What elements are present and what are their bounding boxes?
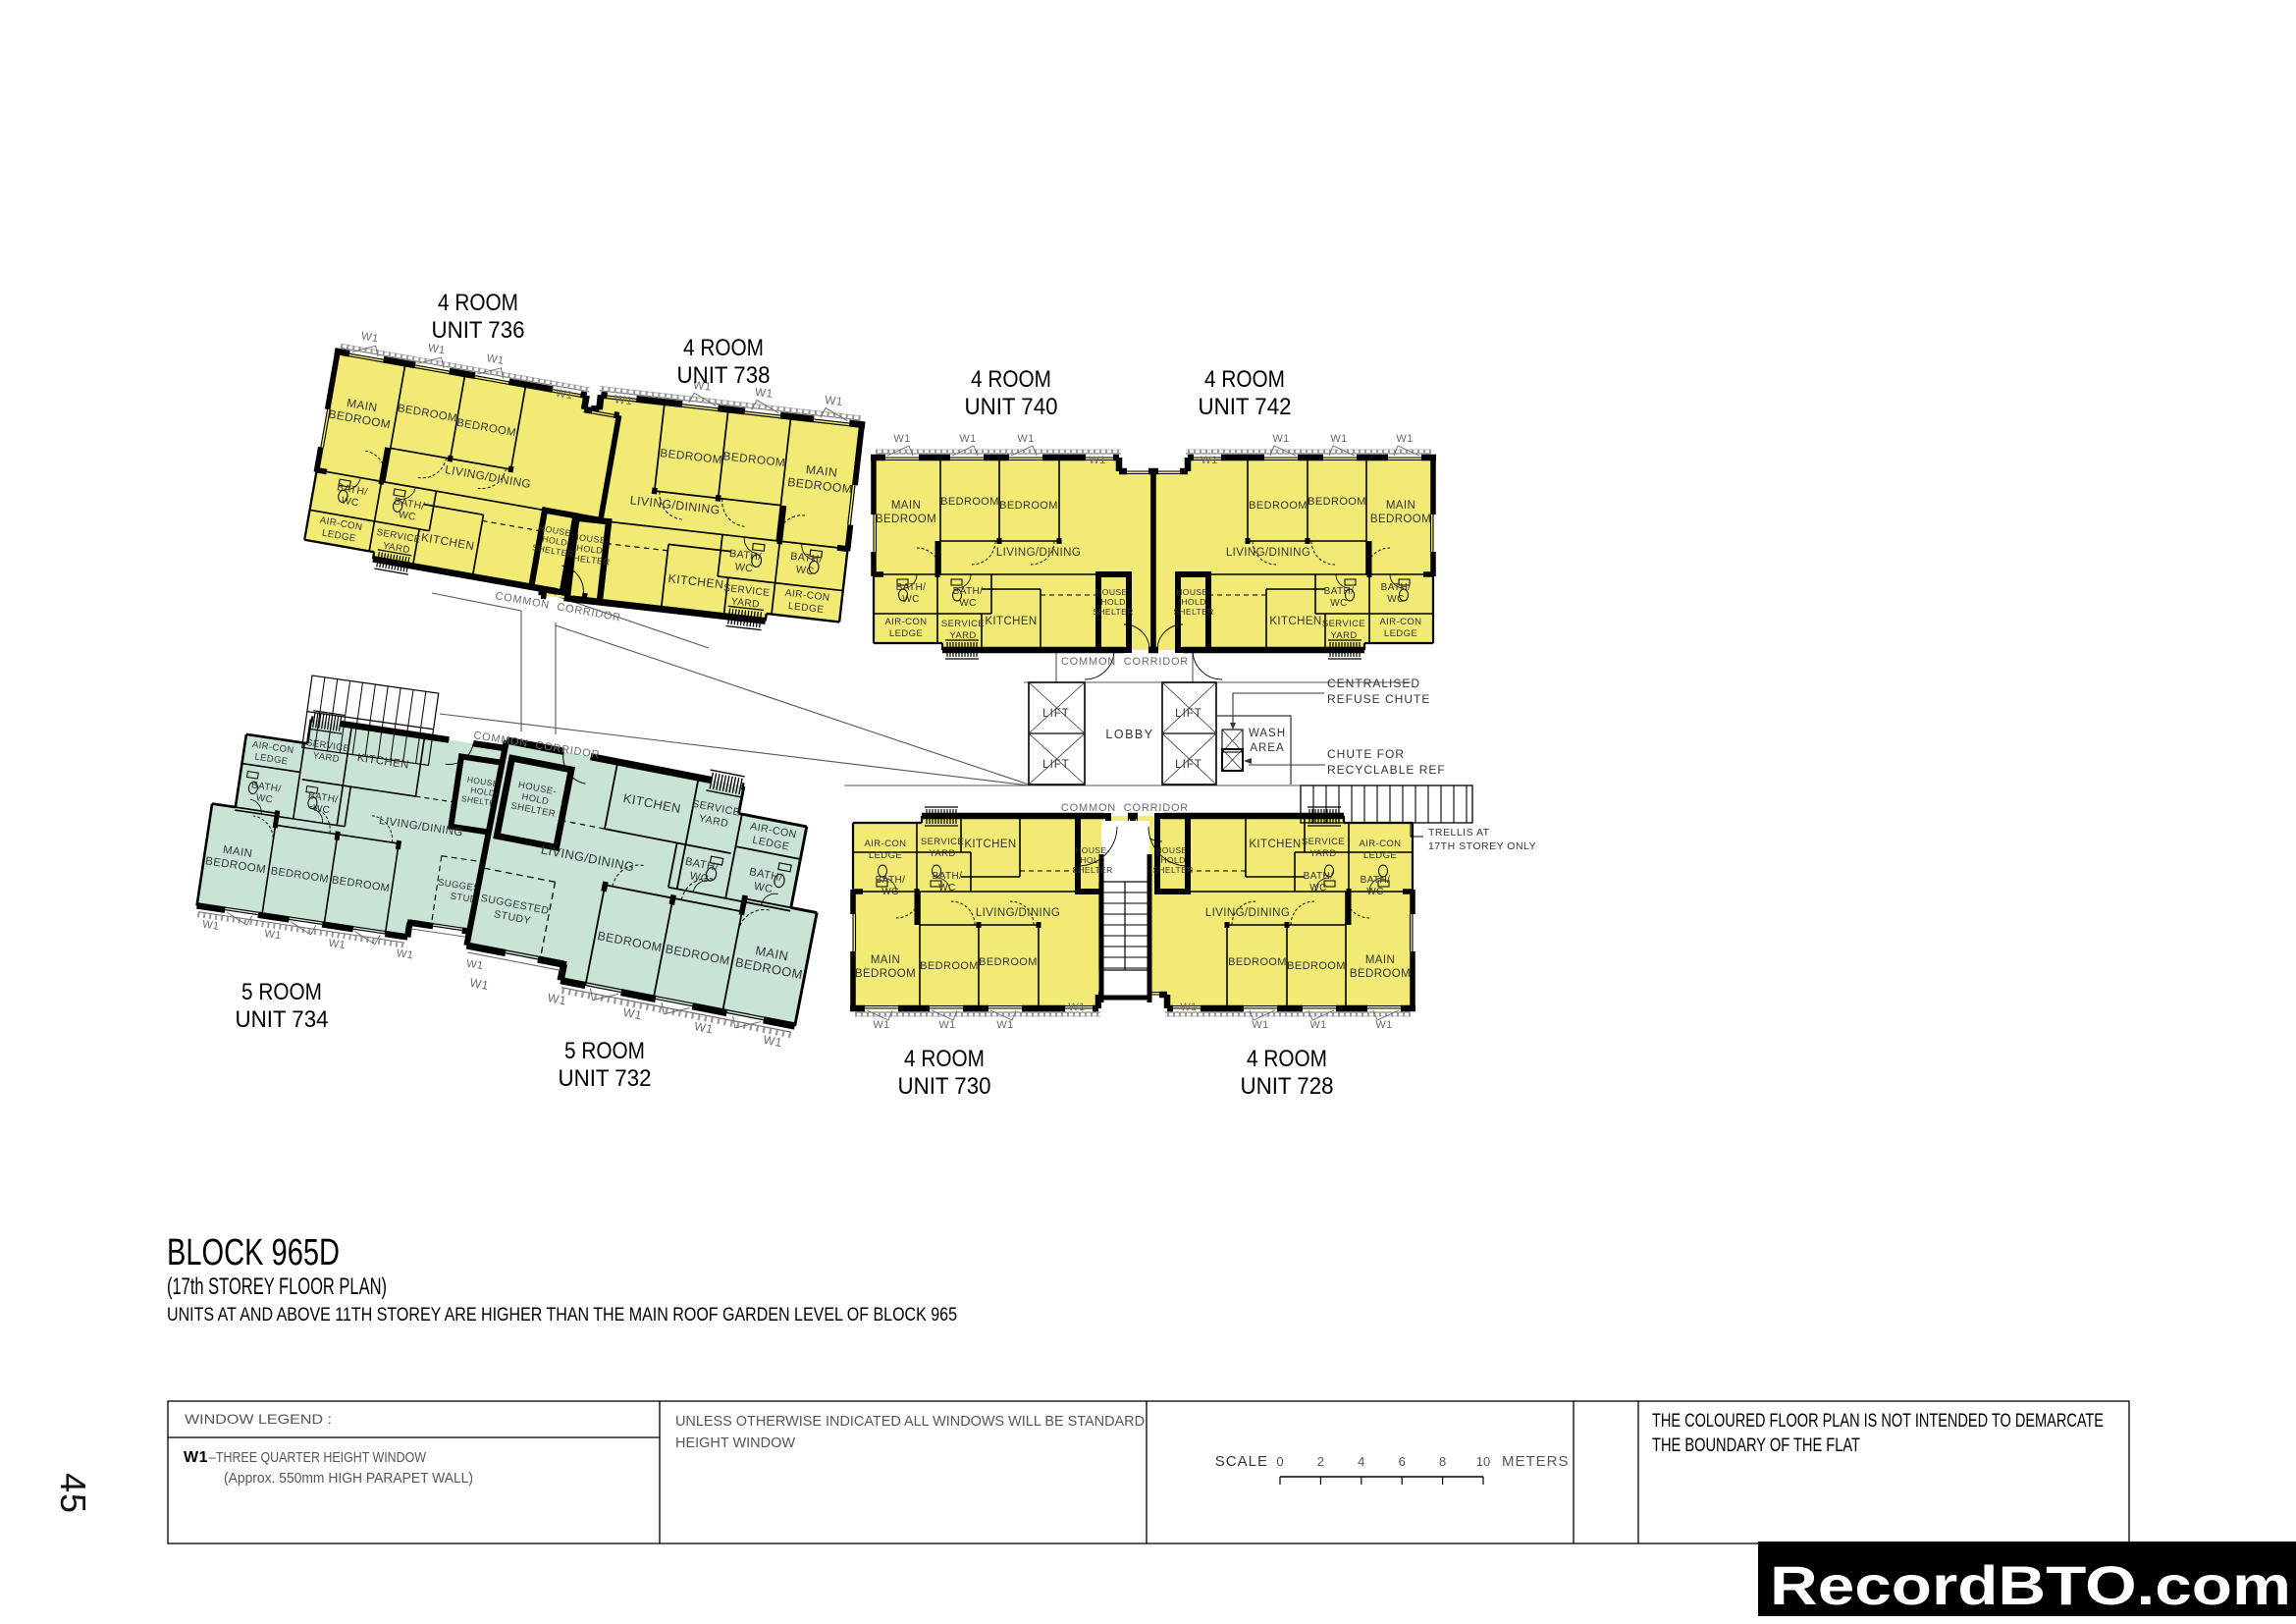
svg-text:4 ROOM: 4 ROOM	[904, 1046, 985, 1072]
svg-text:5 ROOM: 5 ROOM	[564, 1038, 645, 1064]
svg-text:HOUSE-: HOUSE-	[1155, 845, 1190, 855]
svg-text:REFUSE CHUTE: REFUSE CHUTE	[1327, 692, 1430, 706]
svg-text:YARD: YARD	[1309, 848, 1336, 859]
svg-text:4 ROOM: 4 ROOM	[1247, 1046, 1327, 1072]
svg-text:BEDROOM: BEDROOM	[1370, 514, 1431, 525]
svg-text:CENTRALISED: CENTRALISED	[1327, 677, 1420, 690]
svg-text:W1: W1	[264, 928, 283, 942]
svg-text:COMMON CORRIDOR: COMMON CORRIDOR	[1061, 656, 1189, 668]
svg-text:BATH/: BATH/	[876, 875, 906, 886]
svg-text:LIFT: LIFT	[1042, 708, 1070, 720]
svg-text:BEDROOM: BEDROOM	[1249, 500, 1308, 512]
svg-text:SERVICE: SERVICE	[941, 619, 985, 629]
svg-text:AREA: AREA	[1250, 742, 1284, 754]
svg-text:SHELTER: SHELTER	[1173, 607, 1213, 617]
svg-text:WC: WC	[881, 887, 898, 897]
svg-text:BEDROOM: BEDROOM	[855, 968, 916, 980]
svg-text:17TH STOREY ONLY: 17TH STOREY ONLY	[1428, 840, 1536, 852]
svg-text:BEDROOM: BEDROOM	[979, 956, 1038, 968]
svg-text:KITCHEN: KITCHEN	[1269, 616, 1321, 627]
svg-text:2: 2	[1317, 1454, 1324, 1469]
svg-text:(17th STOREY FLOOR PLAN): (17th STOREY FLOOR PLAN)	[167, 1273, 387, 1300]
svg-text:UNIT 728: UNIT 728	[1241, 1073, 1334, 1100]
svg-text:W1: W1	[184, 1449, 208, 1466]
svg-text:BLOCK 965D: BLOCK 965D	[167, 1232, 340, 1273]
svg-text:BATH/: BATH/	[933, 871, 963, 882]
svg-text:BEDROOM: BEDROOM	[999, 500, 1058, 512]
svg-text:BATH/: BATH/	[1304, 871, 1334, 882]
svg-text:BEDROOM: BEDROOM	[940, 496, 999, 508]
svg-text:W1: W1	[996, 1019, 1013, 1031]
svg-text:UNIT 738: UNIT 738	[677, 362, 771, 389]
svg-text:W1: W1	[1089, 455, 1105, 466]
svg-text:LEDGE: LEDGE	[889, 628, 923, 639]
svg-text:SERVICE: SERVICE	[921, 837, 964, 847]
svg-text:4: 4	[1358, 1454, 1364, 1469]
svg-text:BEDROOM: BEDROOM	[1308, 496, 1366, 508]
svg-text:KITCHEN: KITCHEN	[964, 839, 1016, 850]
svg-text:4 ROOM: 4 ROOM	[971, 366, 1051, 393]
svg-text:W1: W1	[328, 938, 347, 951]
svg-text:LIFT: LIFT	[1042, 759, 1070, 771]
svg-text:0: 0	[1276, 1454, 1283, 1469]
svg-text:W1: W1	[1330, 433, 1347, 445]
svg-text:SERVICE: SERVICE	[1302, 837, 1345, 847]
svg-text:WC: WC	[1366, 887, 1383, 897]
svg-text:W1: W1	[201, 918, 220, 932]
svg-text:W1: W1	[1272, 433, 1289, 445]
svg-text:WINDOW LEGEND :: WINDOW LEGEND :	[185, 1411, 332, 1427]
svg-text:HOUSE-: HOUSE-	[1095, 587, 1130, 597]
svg-text:W1: W1	[1180, 1001, 1197, 1013]
svg-text:W1: W1	[1375, 1019, 1392, 1031]
svg-text:BATH/: BATH/	[953, 586, 984, 597]
svg-text:UNIT 742: UNIT 742	[1199, 394, 1292, 420]
svg-text:(Approx. 550mm HIGH PARAPET WA: (Approx. 550mm HIGH PARAPET WALL)	[224, 1471, 473, 1487]
svg-text:WC: WC	[1330, 598, 1347, 609]
svg-text:THE COLOURED FLOOR PLAN IS NOT: THE COLOURED FLOOR PLAN IS NOT INTENDED …	[1652, 1411, 2104, 1432]
svg-text:MAIN: MAIN	[1365, 954, 1395, 966]
svg-text:UNIT 730: UNIT 730	[898, 1073, 991, 1100]
svg-text:HOUSE-: HOUSE-	[1176, 587, 1210, 597]
svg-text:YARD: YARD	[949, 630, 976, 641]
svg-text:4 ROOM: 4 ROOM	[438, 290, 518, 316]
svg-text:WC: WC	[938, 883, 955, 893]
svg-text:SCALE: SCALE	[1215, 1453, 1268, 1470]
svg-text:LIVING/DINING: LIVING/DINING	[1205, 907, 1290, 919]
svg-text:W1: W1	[465, 958, 484, 972]
svg-text:SHELTER: SHELTER	[1152, 865, 1193, 875]
svg-text:10: 10	[1476, 1454, 1490, 1469]
svg-text:W1: W1	[873, 1019, 889, 1031]
svg-text:MAIN: MAIN	[1386, 500, 1415, 512]
svg-text:SHELTER: SHELTER	[1093, 607, 1133, 617]
svg-text:WC: WC	[959, 598, 976, 609]
svg-text:LEDGE: LEDGE	[1363, 850, 1397, 861]
svg-text:LIFT: LIFT	[1175, 759, 1202, 771]
svg-text:W1: W1	[1309, 1019, 1326, 1031]
svg-text:UNLESS OTHERWISE INDICATED ALL: UNLESS OTHERWISE INDICATED ALL WINDOWS W…	[675, 1414, 1145, 1430]
svg-text:W1: W1	[938, 1019, 955, 1031]
svg-text:YARD: YARD	[1330, 630, 1357, 641]
svg-text:UNIT 734: UNIT 734	[236, 1006, 329, 1033]
svg-text:5 ROOM: 5 ROOM	[241, 979, 322, 1005]
svg-text:UNIT 736: UNIT 736	[432, 317, 525, 344]
svg-text:CHUTE FOR: CHUTE FOR	[1327, 747, 1405, 761]
svg-text:W1: W1	[614, 393, 633, 407]
svg-text:COMMON CORRIDOR: COMMON CORRIDOR	[1061, 802, 1189, 814]
svg-text:AIR-CON: AIR-CON	[1380, 617, 1422, 627]
svg-text:LOBBY: LOBBY	[1105, 728, 1153, 741]
svg-text:AIR-CON: AIR-CON	[865, 839, 907, 849]
svg-text:W1: W1	[1252, 1019, 1268, 1031]
svg-text:WASH: WASH	[1249, 728, 1286, 739]
svg-text:HOLD: HOLD	[1181, 597, 1205, 607]
svg-text:TRELLIS AT: TRELLIS AT	[1428, 827, 1490, 839]
svg-text:HEIGHT WINDOW: HEIGHT WINDOW	[675, 1435, 795, 1451]
svg-text:WC: WC	[734, 561, 754, 574]
svg-text:W1: W1	[1396, 433, 1413, 445]
svg-text:BEDROOM: BEDROOM	[1350, 968, 1411, 980]
svg-text:WC: WC	[795, 564, 815, 577]
svg-text:BATH/: BATH/	[1324, 586, 1355, 597]
svg-text:LIVING/DINING: LIVING/DINING	[976, 907, 1060, 919]
svg-text:W1: W1	[825, 394, 844, 408]
svg-text:RECYCLABLE REF: RECYCLABLE REF	[1327, 763, 1446, 777]
svg-text:UNITS AT AND ABOVE 11TH STOREY: UNITS AT AND ABOVE 11TH STOREY ARE HIGHE…	[167, 1305, 957, 1326]
svg-text:WC: WC	[902, 594, 919, 605]
svg-text:W1: W1	[1068, 1001, 1085, 1013]
svg-text:KITCHEN: KITCHEN	[1249, 839, 1301, 850]
svg-text:W1: W1	[1017, 433, 1034, 445]
svg-text:LEDGE: LEDGE	[1384, 628, 1417, 639]
svg-text:BEDROOM: BEDROOM	[920, 960, 979, 972]
svg-text:MAIN: MAIN	[891, 500, 921, 512]
svg-text:SERVICE: SERVICE	[1322, 619, 1365, 629]
svg-text:BATH/: BATH/	[1381, 582, 1412, 593]
svg-text:W1: W1	[396, 947, 414, 961]
svg-text:BEDROOM: BEDROOM	[876, 514, 936, 525]
svg-text:LIFT: LIFT	[1175, 708, 1202, 720]
svg-text:THE BOUNDARY OF THE FLAT: THE BOUNDARY OF THE FLAT	[1652, 1435, 1860, 1456]
svg-text:METERS: METERS	[1502, 1453, 1570, 1470]
svg-text:BEDROOM: BEDROOM	[1228, 956, 1287, 968]
svg-text:4 ROOM: 4 ROOM	[683, 335, 764, 361]
svg-text:UNIT 740: UNIT 740	[965, 394, 1058, 420]
svg-text:WC: WC	[1387, 594, 1404, 605]
svg-text:UNIT 732: UNIT 732	[559, 1065, 652, 1092]
svg-text:WC: WC	[1309, 883, 1326, 893]
svg-text:4 ROOM: 4 ROOM	[1204, 366, 1285, 393]
svg-text:MAIN: MAIN	[871, 954, 900, 966]
svg-text:W1: W1	[1201, 455, 1217, 466]
svg-text:KITCHEN: KITCHEN	[985, 616, 1037, 627]
svg-text:–THREE QUARTER HEIGHT WINDOW: –THREE QUARTER HEIGHT WINDOW	[209, 1450, 426, 1466]
svg-text:LIVING/DINING: LIVING/DINING	[1226, 547, 1310, 559]
svg-text:RecordBTO.com: RecordBTO.com	[1770, 1554, 2291, 1616]
svg-text:YARD: YARD	[929, 848, 955, 859]
svg-text:AIR-CON: AIR-CON	[1360, 839, 1402, 849]
svg-text:SHELTER: SHELTER	[1072, 865, 1112, 875]
svg-text:HOUSE-: HOUSE-	[1075, 845, 1109, 855]
svg-text:8: 8	[1439, 1454, 1446, 1469]
svg-text:6: 6	[1399, 1454, 1406, 1469]
svg-text:HOLD: HOLD	[1100, 597, 1125, 607]
svg-text:45: 45	[53, 1473, 93, 1514]
svg-text:W1: W1	[959, 433, 976, 445]
svg-text:LIVING/DINING: LIVING/DINING	[996, 547, 1081, 559]
svg-text:W1: W1	[893, 433, 910, 445]
svg-text:BATH/: BATH/	[1361, 875, 1391, 886]
svg-text:LEDGE: LEDGE	[869, 850, 902, 861]
svg-text:BATH/: BATH/	[896, 582, 927, 593]
svg-text:AIR-CON: AIR-CON	[885, 617, 928, 627]
svg-text:BEDROOM: BEDROOM	[1287, 960, 1346, 972]
